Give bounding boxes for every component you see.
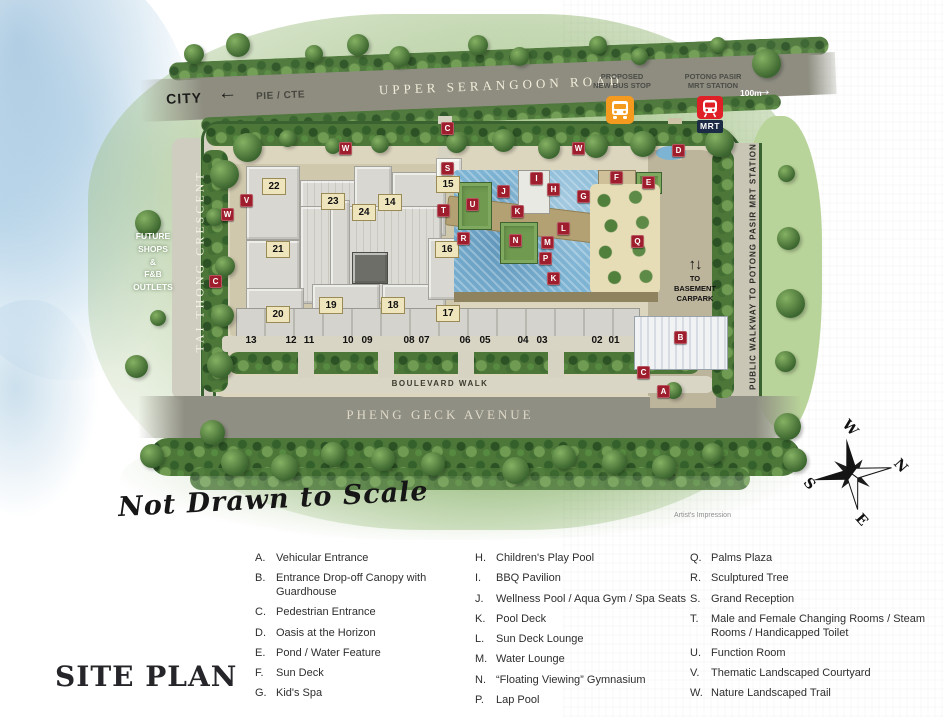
legend-label: Palms Plaza xyxy=(711,552,933,566)
tree-icon xyxy=(215,256,235,276)
map-marker-f: F xyxy=(610,171,623,184)
tree-icon xyxy=(538,137,560,159)
legend-item-c: C.Pedestrian Entrance xyxy=(255,606,475,620)
legend-item-i: I.BBQ Pavilion xyxy=(475,572,690,586)
legend-label: Pond / Water Feature xyxy=(276,647,475,661)
legend-label: Entrance Drop-off Canopy with Guardhouse xyxy=(276,572,475,600)
map-marker-w: W xyxy=(221,208,234,221)
future-shops-line: SHOPS xyxy=(118,243,188,256)
mrt-train-glyph xyxy=(697,96,723,119)
tree-icon xyxy=(125,355,148,378)
tree-icon xyxy=(347,34,369,56)
future-shops-line: & xyxy=(118,256,188,269)
legend-item-n: N.“Floating Viewing” Gymnasium xyxy=(475,674,690,688)
legend-item-u: U.Function Room xyxy=(690,647,933,661)
mrt-station-line1: POTONG PASIR xyxy=(668,72,758,81)
tree-icon xyxy=(552,445,576,469)
map-marker-q: Q xyxy=(631,235,644,248)
tower-16-label: 16 xyxy=(435,241,459,258)
legend-item-a: A.Vehicular Entrance xyxy=(255,552,475,566)
tree-icon xyxy=(446,132,467,153)
legend-key: R. xyxy=(690,572,711,586)
tree-icon xyxy=(502,457,529,484)
tower-18-label: 18 xyxy=(381,297,405,314)
map-marker-s: S xyxy=(441,162,454,175)
tree-icon xyxy=(150,310,166,326)
legend-label: Wellness Pool / Aqua Gym / Spa Seats xyxy=(496,593,690,607)
legend-key: E. xyxy=(255,647,276,661)
legend-column-1: A.Vehicular EntranceB.Entrance Drop-off … xyxy=(255,552,475,714)
legend-key: A. xyxy=(255,552,276,566)
map-marker-k: K xyxy=(547,272,560,285)
legend-key: G. xyxy=(255,687,276,701)
legend-label: BBQ Pavilion xyxy=(496,572,690,586)
future-shops-line: OUTLETS xyxy=(118,281,188,294)
tree-icon xyxy=(778,165,795,182)
basement-text: TOBASEMENTCARPARK xyxy=(660,274,730,303)
legend-label: Sun Deck Lounge xyxy=(496,633,690,647)
tree-icon xyxy=(631,48,648,65)
legend-key: V. xyxy=(690,667,711,681)
tree-icon xyxy=(584,134,608,158)
legend-label: Lap Pool xyxy=(496,694,690,708)
basement-line: CARPARK xyxy=(660,294,730,304)
legend-key: H. xyxy=(475,552,496,566)
legend-label: Sculptured Tree xyxy=(711,572,933,586)
legend-label: Oasis at the Horizon xyxy=(276,627,475,641)
tree-icon xyxy=(421,452,445,476)
map-marker-k: K xyxy=(511,205,524,218)
legend-item-w: W.Nature Landscaped Trail xyxy=(690,687,933,701)
bus-stop-icon xyxy=(606,96,634,124)
map-marker-a: A xyxy=(657,385,670,398)
legend-label: Pool Deck xyxy=(496,613,690,627)
legend-item-f: F.Sun Deck xyxy=(255,667,475,681)
legend-key: S. xyxy=(690,593,711,607)
tree-icon xyxy=(221,449,248,476)
legend-key: L. xyxy=(475,633,496,647)
legend-label: Children's Play Pool xyxy=(496,552,690,566)
tree-icon xyxy=(305,45,323,63)
pool-deck-lower xyxy=(454,292,658,302)
legend-label: “Floating Viewing” Gymnasium xyxy=(496,674,690,688)
tower-15-label: 15 xyxy=(436,176,460,193)
legend-item-j: J.Wellness Pool / Aqua Gym / Spa Seats xyxy=(475,593,690,607)
legend-key: I. xyxy=(475,572,496,586)
legend-key: F. xyxy=(255,667,276,681)
basement-arrows-icon: ↑↓ xyxy=(660,256,730,273)
unit-09-label: 09 xyxy=(356,335,378,347)
tree-icon xyxy=(279,130,296,147)
legend-label: Water Lounge xyxy=(496,653,690,667)
tai-thong-crescent-label: TAI THONG CRESCENT xyxy=(193,173,208,353)
legend-item-h: H.Children's Play Pool xyxy=(475,552,690,566)
legend-key: D. xyxy=(255,627,276,641)
tree-icon xyxy=(184,44,204,64)
map-marker-w: W xyxy=(339,142,352,155)
artists-impression-note: Artist's Impression xyxy=(674,512,731,519)
legend-label: Male and Female Changing Rooms / Steam R… xyxy=(711,613,933,641)
map-marker-c: C xyxy=(441,122,454,135)
tree-icon xyxy=(200,420,225,445)
map-marker-v: V xyxy=(240,194,253,207)
future-shops-line: F&B xyxy=(118,268,188,281)
bus-stop-line1: PROPOSED xyxy=(578,72,666,81)
driveway-stub xyxy=(298,350,314,378)
map-marker-n: N xyxy=(509,234,522,247)
legend-column-3: Q.Palms PlazaR.Sculptured TreeS.Grand Re… xyxy=(690,552,933,714)
legend-key: U. xyxy=(690,647,711,661)
map-marker-w: W xyxy=(572,142,585,155)
tree-icon xyxy=(776,289,805,318)
tree-icon xyxy=(589,36,607,54)
legend-key: J. xyxy=(475,593,496,607)
tree-icon xyxy=(510,47,529,66)
tree-icon xyxy=(710,37,726,53)
legend-key: K. xyxy=(475,613,496,627)
map-marker-i: I xyxy=(530,172,543,185)
legend-label: Kid's Spa xyxy=(276,687,475,701)
legend-label: Sun Deck xyxy=(276,667,475,681)
map-marker-u: U xyxy=(466,198,479,211)
legend-item-t: T.Male and Female Changing Rooms / Steam… xyxy=(690,613,933,641)
tree-icon xyxy=(468,35,488,55)
tree-icon xyxy=(774,413,801,440)
page-title: SITE PLAN xyxy=(55,660,237,693)
map-marker-d: D xyxy=(672,144,685,157)
map-marker-m: M xyxy=(541,236,554,249)
boulevard-walk-label: BOULEVARD WALK xyxy=(300,379,580,388)
mrt-badge: MRT xyxy=(697,120,723,133)
tree-icon xyxy=(271,454,298,481)
tree-icon xyxy=(492,129,515,152)
legend-item-e: E.Pond / Water Feature xyxy=(255,647,475,661)
site-plan-page: CITY ← PIE / CTE UPPER SERANGOON ROAD PR… xyxy=(0,0,943,717)
map-marker-j: J xyxy=(497,185,510,198)
compass-rose: W N S E xyxy=(800,412,914,548)
legend-item-m: M.Water Lounge xyxy=(475,653,690,667)
map-marker-b: B xyxy=(674,331,687,344)
legend-column-2: H.Children's Play PoolI.BBQ PavilionJ.We… xyxy=(475,552,690,714)
legend-item-d: D.Oasis at the Horizon xyxy=(255,627,475,641)
legend-item-g: G.Kid's Spa xyxy=(255,687,475,701)
tree-icon xyxy=(777,227,800,250)
basement-line: TO xyxy=(660,274,730,284)
tower-24-label: 24 xyxy=(352,204,376,221)
unit-01-label: 01 xyxy=(603,335,625,347)
legend-key: B. xyxy=(255,572,276,600)
legend-label: Grand Reception xyxy=(711,593,933,607)
legend-item-v: V.Thematic Landscaped Courtyard xyxy=(690,667,933,681)
tower-20-label: 20 xyxy=(266,306,290,323)
tree-icon xyxy=(207,352,233,378)
future-shops-label: FUTURESHOPS&F&BOUTLETS xyxy=(118,230,188,294)
tree-icon xyxy=(321,442,345,466)
tower-14-label: 14 xyxy=(378,194,402,211)
tree-icon xyxy=(211,304,234,327)
public-walkway-label: PUBLIC WALKWAY TO POTONG PASIR MRT STATI… xyxy=(749,122,758,412)
basement-line: BASEMENT xyxy=(660,284,730,294)
legend-label: Vehicular Entrance xyxy=(276,552,475,566)
tree-icon xyxy=(630,131,656,157)
legend-key: P. xyxy=(475,694,496,708)
tree-icon xyxy=(140,444,164,468)
tree-icon xyxy=(226,33,250,57)
tree-icon xyxy=(602,450,626,474)
tower-19-label: 19 xyxy=(319,297,343,314)
map-marker-h: H xyxy=(547,183,560,196)
bus-stop-line2: NEW BUS STOP xyxy=(578,81,666,90)
legend-key: C. xyxy=(255,606,276,620)
tower-23-label: 23 xyxy=(321,193,345,210)
tree-icon xyxy=(233,133,262,162)
legend-item-r: R.Sculptured Tree xyxy=(690,572,933,586)
tree-icon xyxy=(652,455,676,479)
basement-carpark-label: ↑↓ TOBASEMENTCARPARK xyxy=(660,256,730,303)
legend-key: T. xyxy=(690,613,711,641)
tree-icon xyxy=(775,351,796,372)
driveway-stub xyxy=(548,350,564,378)
legend: A.Vehicular EntranceB.Entrance Drop-off … xyxy=(255,552,943,714)
unit-11-label: 11 xyxy=(298,335,320,347)
unit-06-label: 06 xyxy=(454,335,476,347)
mrt-station-icon: MRT xyxy=(697,96,723,134)
legend-label: Pedestrian Entrance xyxy=(276,606,475,620)
map-marker-t: T xyxy=(437,204,450,217)
map-marker-e: E xyxy=(642,176,655,189)
driveway-stub xyxy=(458,350,474,378)
tower-17-label: 17 xyxy=(436,305,460,322)
legend-label: Nature Landscaped Trail xyxy=(711,687,933,701)
map-marker-r: R xyxy=(457,232,470,245)
legend-item-p: P.Lap Pool xyxy=(475,694,690,708)
tower-22-label: 22 xyxy=(262,178,286,195)
tree-icon xyxy=(371,135,389,153)
legend-item-k: K.Pool Deck xyxy=(475,613,690,627)
tree-icon xyxy=(210,160,239,189)
unit-13-label: 13 xyxy=(240,335,262,347)
legend-key: Q. xyxy=(690,552,711,566)
driveway-stub xyxy=(378,350,394,378)
map-marker-c: C xyxy=(637,366,650,379)
tree-icon xyxy=(389,46,410,67)
unit-07-label: 07 xyxy=(413,335,435,347)
mrt-right-arrow-icon: → xyxy=(756,82,772,100)
legend-key: W. xyxy=(690,687,711,701)
future-shops-line: FUTURE xyxy=(118,230,188,243)
map-marker-g: G xyxy=(577,190,590,203)
map-marker-c: C xyxy=(209,275,222,288)
proposed-bus-stop-label: PROPOSED NEW BUS STOP xyxy=(578,72,666,91)
legend-label: Thematic Landscaped Courtyard xyxy=(711,667,933,681)
legend-item-b: B.Entrance Drop-off Canopy with Guardhou… xyxy=(255,572,475,600)
legend-item-s: S.Grand Reception xyxy=(690,593,933,607)
tower-21-label: 21 xyxy=(266,241,290,258)
palms-plaza xyxy=(590,184,660,294)
legend-label: Function Room xyxy=(711,647,933,661)
legend-item-l: L.Sun Deck Lounge xyxy=(475,633,690,647)
tree-icon xyxy=(702,443,723,464)
pheng-geck-avenue-label: PHENG GECK AVENUE xyxy=(290,407,590,423)
tree-icon xyxy=(371,447,395,471)
legend-key: N. xyxy=(475,674,496,688)
unit-03-label: 03 xyxy=(531,335,553,347)
unit-05-label: 05 xyxy=(474,335,496,347)
legend-key: M. xyxy=(475,653,496,667)
map-marker-p: P xyxy=(539,252,552,265)
legend-item-q: Q.Palms Plaza xyxy=(690,552,933,566)
map-marker-l: L xyxy=(557,222,570,235)
